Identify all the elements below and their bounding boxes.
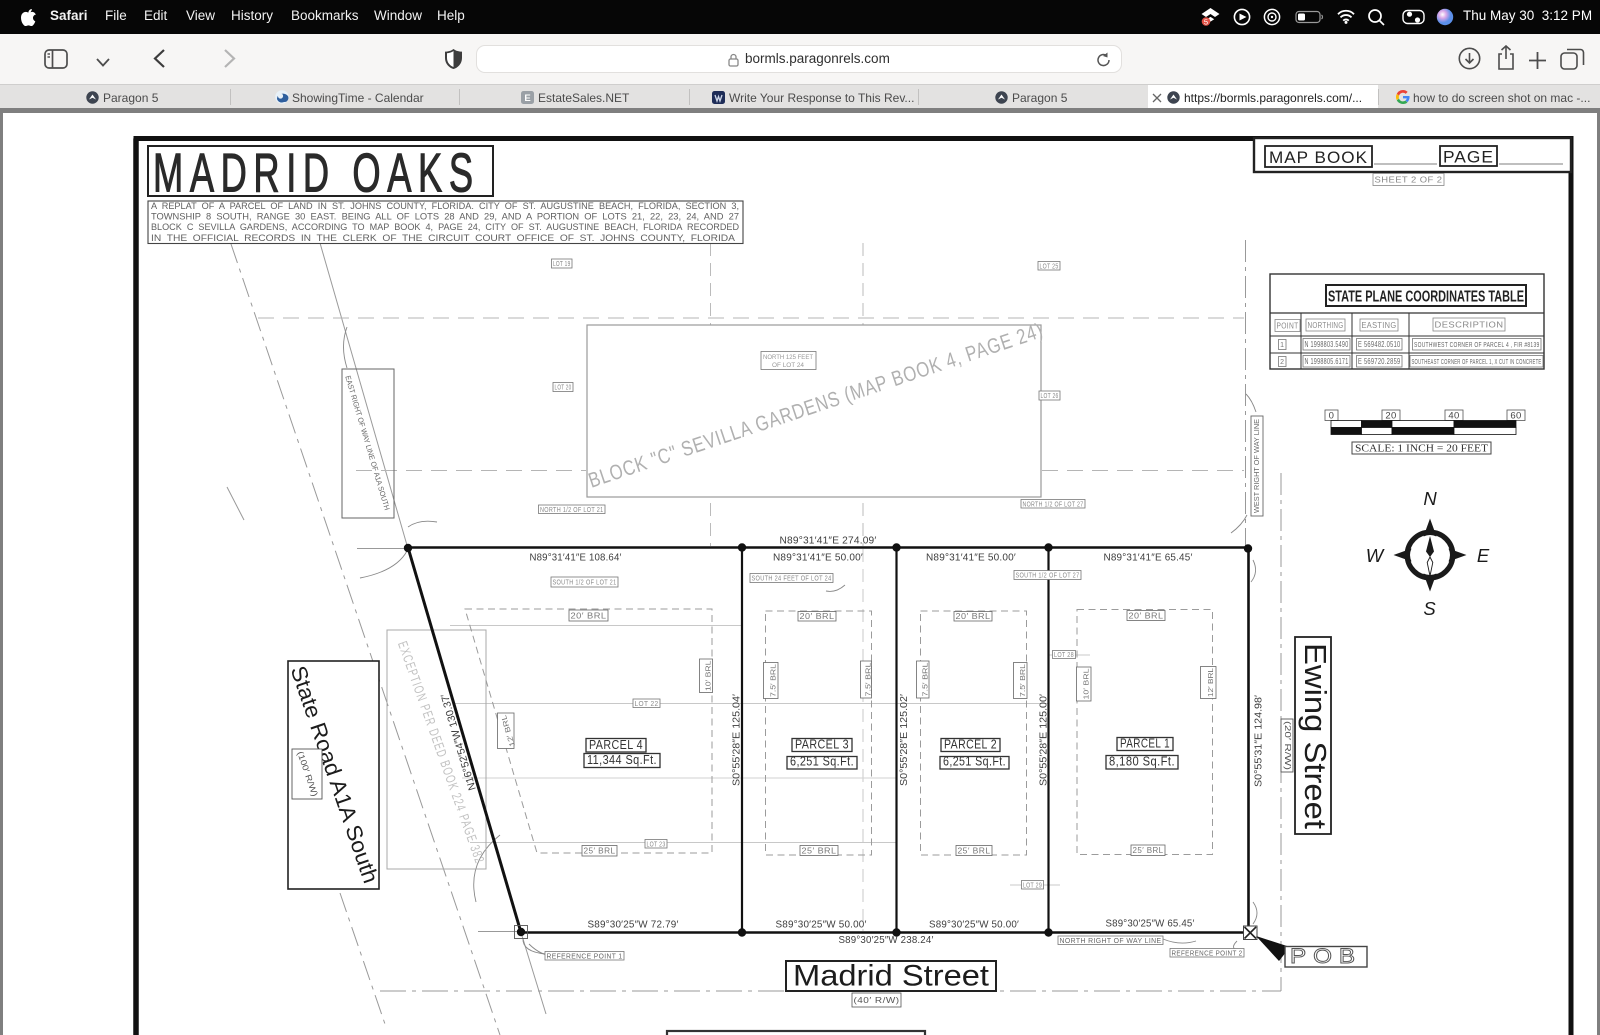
- svg-text:BLOCK C SEVILLA GARDENS, ACCOR: BLOCK C SEVILLA GARDENS, ACCORDING TO MA…: [151, 222, 740, 232]
- svg-text:LOT 23: LOT 23: [647, 840, 666, 849]
- svg-text:NORTH 1/2 OF LOT 21: NORTH 1/2 OF LOT 21: [540, 507, 604, 514]
- svg-text:MAP BOOK: MAP BOOK: [1269, 148, 1368, 167]
- svg-text:N89°31′41″E 65.45′: N89°31′41″E 65.45′: [1104, 552, 1193, 564]
- svg-text:40: 40: [1448, 411, 1459, 422]
- svg-text:REFERENCE POINT 2: REFERENCE POINT 2: [1172, 950, 1243, 957]
- svg-text:SOUTH 1/2 OF LOT 27: SOUTH 1/2 OF LOT 27: [1016, 573, 1080, 580]
- svg-text:N 1998803.5490: N 1998803.5490: [1305, 340, 1349, 349]
- svg-text:7.5′ BRL: 7.5′ BRL: [864, 663, 873, 697]
- svg-text:7.5′ BRL: 7.5′ BRL: [920, 663, 929, 697]
- svg-text:EASTING: EASTING: [1362, 320, 1397, 330]
- svg-text:(40′ R/W): (40′ R/W): [854, 995, 900, 1005]
- svg-text:NORTH 125 FEET: NORTH 125 FEET: [763, 354, 813, 361]
- svg-text:10′ BRL: 10′ BRL: [704, 661, 713, 692]
- svg-text:20: 20: [1385, 411, 1396, 422]
- svg-text:MADRID OAKS: MADRID OAKS: [153, 142, 480, 203]
- svg-text:REFERENCE POINT 1: REFERENCE POINT 1: [547, 953, 623, 960]
- svg-text:POB: POB: [1290, 945, 1362, 968]
- svg-text:IN THE OFFICIAL RECORDS IN THE: IN THE OFFICIAL RECORDS IN THE CLERK OF …: [151, 233, 735, 243]
- svg-text:E 569482.0510: E 569482.0510: [1358, 340, 1401, 349]
- svg-text:Ewing Street: Ewing Street: [1298, 643, 1333, 829]
- svg-text:SCALE: 1 INCH = 20 FEET: SCALE: 1 INCH = 20 FEET: [1355, 443, 1488, 455]
- svg-text:8,180 Sq.Ft.: 8,180 Sq.Ft.: [1109, 754, 1175, 769]
- svg-text:SOUTH 24 FEET OF LOT 24: SOUTH 24 FEET OF LOT 24: [752, 576, 832, 583]
- svg-text:S89°30′25″W 238.24′: S89°30′25″W 238.24′: [839, 934, 934, 946]
- svg-text:N: N: [1423, 488, 1437, 509]
- svg-text:7.5′ BRL: 7.5′ BRL: [1018, 664, 1027, 697]
- svg-text:S: S: [1423, 598, 1436, 619]
- svg-text:LOT 22: LOT 22: [635, 699, 659, 708]
- svg-text:W: W: [1366, 545, 1385, 566]
- svg-text:25′ BRL: 25′ BRL: [1133, 846, 1164, 855]
- svg-text:PAGE: PAGE: [1443, 148, 1494, 167]
- svg-text:SHEET 2 OF 2: SHEET 2 OF 2: [1375, 175, 1443, 185]
- svg-text:20′ BRL: 20′ BRL: [956, 612, 991, 621]
- svg-text:LOT 26: LOT 26: [1041, 391, 1059, 400]
- svg-text:NORTHING: NORTHING: [1308, 320, 1344, 330]
- svg-text:LOT 20: LOT 20: [555, 383, 572, 392]
- svg-text:S89°30′25″W 50.00′: S89°30′25″W 50.00′: [776, 919, 867, 931]
- svg-text:S0°55′28″E 125.00′: S0°55′28″E 125.00′: [1037, 694, 1049, 786]
- svg-text:0: 0: [1329, 411, 1335, 422]
- svg-text:SOUTHEAST CORNER OF PARCEL 1,: SOUTHEAST CORNER OF PARCEL 1, X CUT IN C…: [1412, 359, 1542, 366]
- svg-text:LOT 28: LOT 28: [1054, 650, 1074, 659]
- svg-text:N89°31′41″E 274.09′: N89°31′41″E 274.09′: [780, 535, 877, 547]
- svg-text:WEST RIGHT OF WAY LINE: WEST RIGHT OF WAY LINE: [1252, 419, 1261, 513]
- svg-text:S89°30′25″W 72.79′: S89°30′25″W 72.79′: [588, 919, 679, 931]
- svg-text:E: E: [1477, 545, 1490, 566]
- svg-text:N89°31′41″E 50.00′: N89°31′41″E 50.00′: [773, 552, 863, 564]
- svg-text:N 1998805.6171: N 1998805.6171: [1305, 357, 1349, 366]
- svg-text:6,251 Sq.Ft.: 6,251 Sq.Ft.: [943, 754, 1006, 769]
- svg-text:20′ BRL: 20′ BRL: [571, 611, 607, 620]
- svg-text:S0°55′28″E 125.02′: S0°55′28″E 125.02′: [898, 694, 910, 786]
- svg-text:E 569720.2859: E 569720.2859: [1358, 357, 1401, 366]
- svg-text:S0°55′31″E 124.98′: S0°55′31″E 124.98′: [1252, 695, 1264, 787]
- svg-text:N89°31′41″E 108.64′: N89°31′41″E 108.64′: [530, 552, 622, 564]
- svg-text:(20′ R/W): (20′ R/W): [1283, 721, 1293, 770]
- svg-text:LOT 19: LOT 19: [553, 259, 571, 268]
- svg-text:20′ BRL: 20′ BRL: [1129, 611, 1164, 620]
- svg-text:5: 5: [1204, 17, 1208, 26]
- svg-text:S89°30′25″W 65.45′: S89°30′25″W 65.45′: [1106, 918, 1195, 930]
- svg-text:6,251 Sq.Ft.: 6,251 Sq.Ft.: [790, 754, 854, 769]
- svg-text:10′ BRL: 10′ BRL: [1081, 669, 1090, 700]
- svg-text:25′ BRL: 25′ BRL: [958, 846, 991, 855]
- svg-text:DESCRIPTION: DESCRIPTION: [1435, 320, 1504, 330]
- svg-text:SOUTHWEST CORNER OF PARCEL 4 ,: SOUTHWEST CORNER OF PARCEL 4 , FIR #8139: [1414, 342, 1540, 349]
- svg-text:EXCEPTION PER DEED BOOK 224 PA: EXCEPTION PER DEED BOOK 224 PAGE 382: [395, 639, 488, 866]
- svg-text:A REPLAT OF A PARCEL OF LAND I: A REPLAT OF A PARCEL OF LAND IN ST. JOHN…: [151, 201, 739, 211]
- svg-text:PARCEL 3: PARCEL 3: [795, 736, 849, 751]
- svg-text:SOUTH 1/2 OF LOT 21: SOUTH 1/2 OF LOT 21: [553, 580, 617, 587]
- svg-text:NORTH 1/2 OF LOT 27: NORTH 1/2 OF LOT 27: [1023, 501, 1084, 508]
- svg-text:POINT: POINT: [1277, 321, 1299, 331]
- svg-text:25′ BRL: 25′ BRL: [802, 846, 837, 855]
- svg-text:EAST RIGHT OF WAY LINE OF A1A: EAST RIGHT OF WAY LINE OF A1A SOUTH: [343, 374, 391, 511]
- svg-text:20′ BRL: 20′ BRL: [800, 612, 835, 621]
- svg-text:LOT 29: LOT 29: [1023, 881, 1042, 890]
- svg-text:7.5′ BRL: 7.5′ BRL: [768, 664, 777, 697]
- svg-text:S89°30′25″W 50.00′: S89°30′25″W 50.00′: [929, 919, 1019, 931]
- svg-text:PARCEL 2: PARCEL 2: [944, 736, 997, 751]
- svg-text:PARCEL 4: PARCEL 4: [589, 737, 643, 752]
- svg-text:E: E: [524, 93, 530, 104]
- svg-text:N89°31′41″E 50.00′: N89°31′41″E 50.00′: [926, 552, 1016, 564]
- svg-text:Madrid Street: Madrid Street: [793, 960, 990, 993]
- svg-text:PARCEL 1: PARCEL 1: [1120, 735, 1170, 750]
- svg-text:S0°55′28″E 125.04′: S0°55′28″E 125.04′: [730, 694, 742, 786]
- svg-text:1: 1: [1280, 342, 1284, 349]
- svg-text:TOWNSHIP 8 SOUTH, RANGE 30 EAS: TOWNSHIP 8 SOUTH, RANGE 30 EAST. BEING A…: [151, 212, 739, 222]
- svg-text:OF LOT 24: OF LOT 24: [772, 362, 804, 369]
- svg-text:STATE PLANE COORDINATES TABLE: STATE PLANE COORDINATES TABLE: [1328, 289, 1524, 306]
- svg-text:NORTH RIGHT OF WAY LINE: NORTH RIGHT OF WAY LINE: [1060, 938, 1162, 945]
- svg-text:LOT 25: LOT 25: [1040, 261, 1059, 270]
- svg-text:12′ BRL: 12′ BRL: [1206, 668, 1215, 697]
- svg-text:25′ BRL: 25′ BRL: [584, 847, 616, 856]
- svg-text:60: 60: [1510, 411, 1521, 422]
- svg-text:2: 2: [1280, 359, 1284, 366]
- svg-text:11,344 Sq.Ft.: 11,344 Sq.Ft.: [587, 752, 657, 767]
